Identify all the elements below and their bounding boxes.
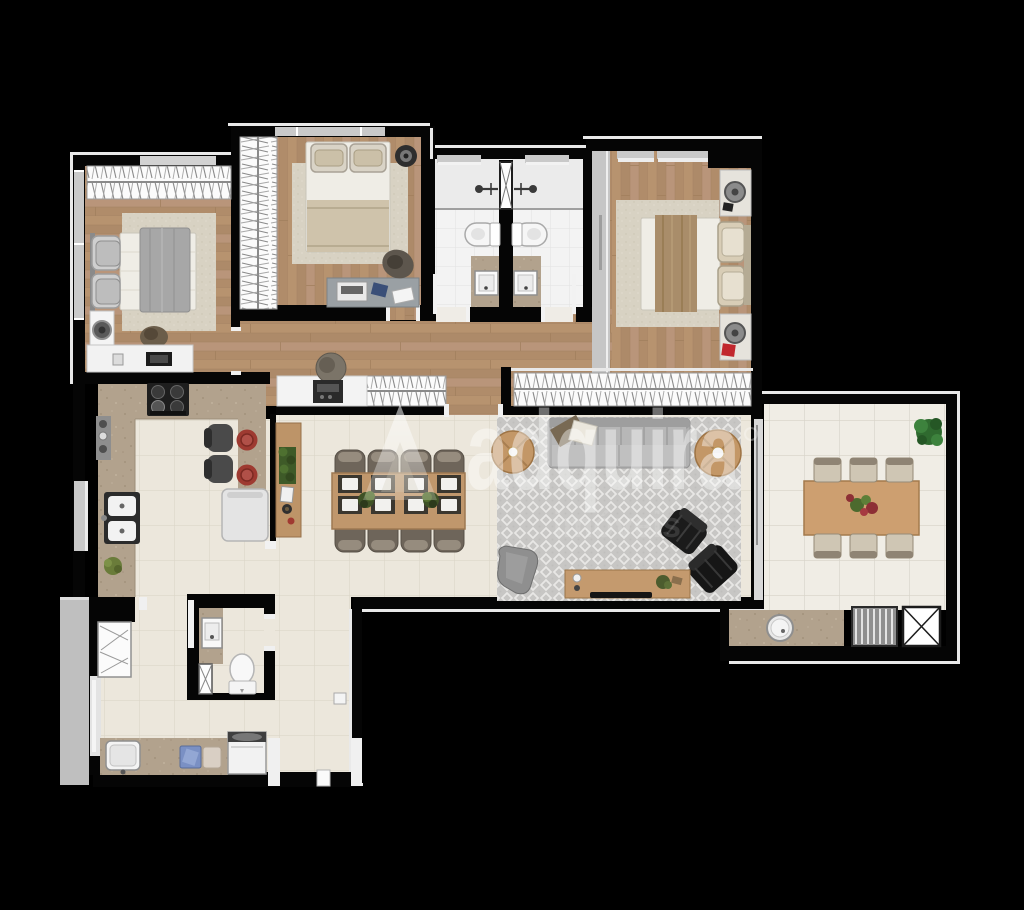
svg-text:imóveis: imóveis <box>553 504 681 545</box>
svg-text:adquira: adquira <box>466 388 740 513</box>
